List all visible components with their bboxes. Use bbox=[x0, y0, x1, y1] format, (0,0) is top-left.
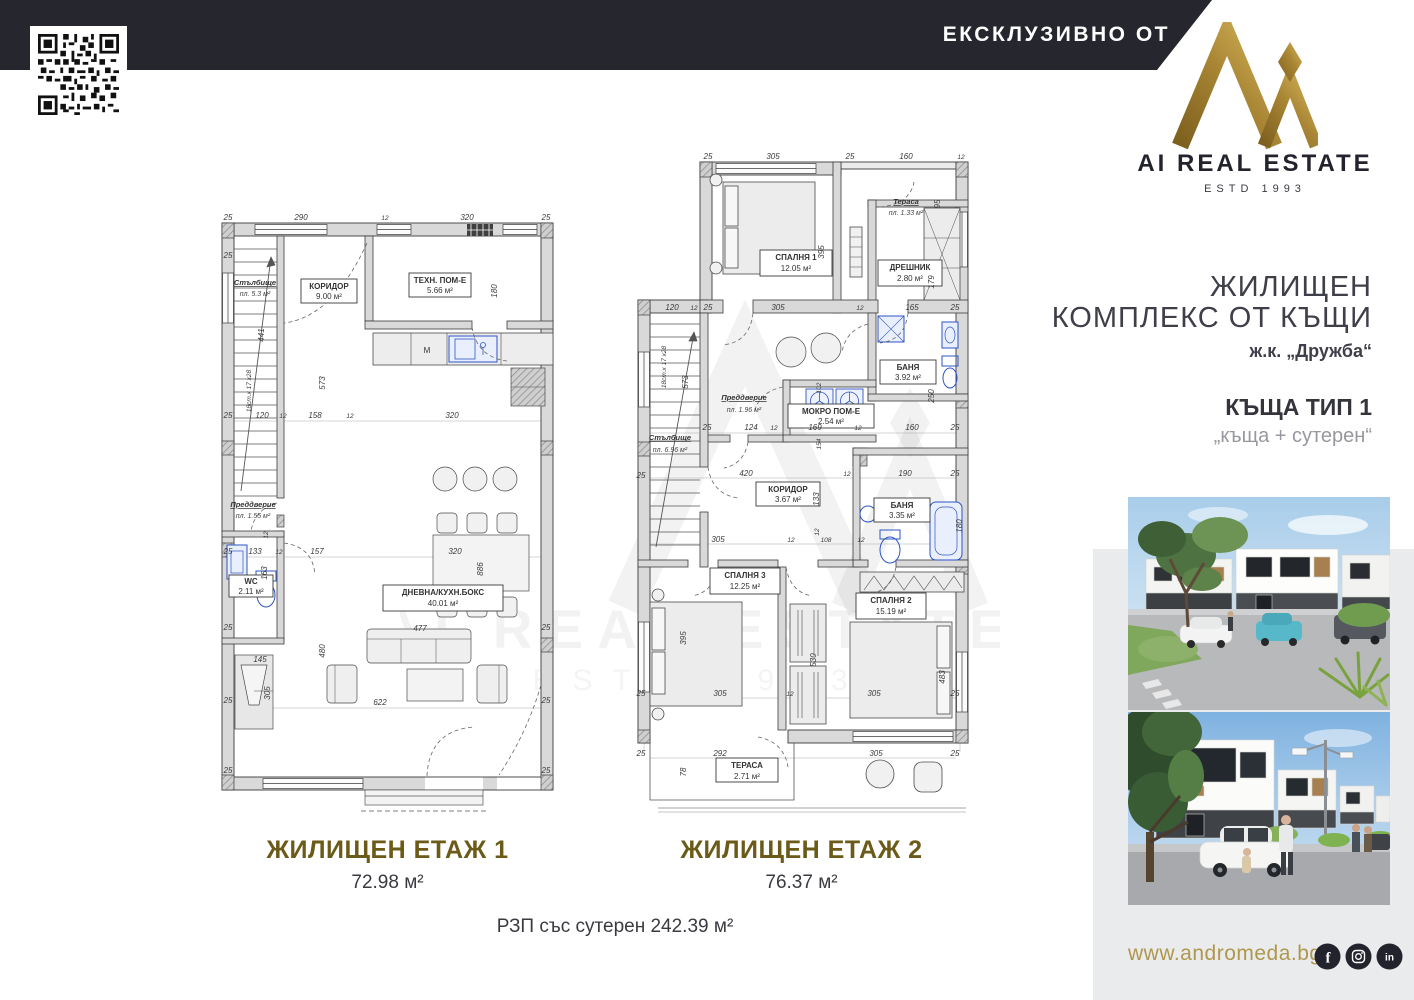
dimension-label: 120 bbox=[255, 411, 269, 420]
dimension-label: 157 bbox=[310, 547, 324, 556]
svg-text:Стълбище: Стълбище bbox=[649, 433, 691, 442]
svg-text:пл. 1.55 м²: пл. 1.55 м² bbox=[236, 513, 271, 520]
dimension-label: 25 bbox=[950, 469, 960, 478]
dimension-label: 25 bbox=[702, 423, 712, 432]
dimension-label: 250 bbox=[927, 389, 936, 404]
svg-text:15.19 м²: 15.19 м² bbox=[876, 607, 907, 616]
qr-code bbox=[30, 26, 127, 122]
facebook-icon[interactable]: f bbox=[1314, 943, 1341, 970]
dimension-label: 395 bbox=[679, 631, 688, 645]
total-area: РЗП със сутерен 242.39 м² bbox=[340, 916, 890, 938]
floor1-area: 72.98 м² bbox=[215, 872, 560, 894]
house-type: КЪЩА ТИП 1 bbox=[972, 394, 1372, 421]
dimension-label: 12 bbox=[279, 413, 287, 420]
dimension-label: 573 bbox=[681, 375, 690, 389]
svg-text:БАНЯ: БАНЯ bbox=[897, 363, 920, 372]
svg-text:ТЕХН. ПОМ-Е: ТЕХН. ПОМ-Е bbox=[414, 276, 467, 285]
floor2-title-block: ЖИЛИЩЕН ЕТАЖ 2 76.37 м² bbox=[628, 836, 975, 894]
house-subtype: „къща + сутерен“ bbox=[972, 425, 1372, 448]
dimension-label: 102 bbox=[816, 382, 823, 393]
dimension-label: 133 bbox=[248, 547, 262, 556]
svg-text:СПАЛНЯ 3: СПАЛНЯ 3 bbox=[724, 571, 766, 580]
dimension-label: 25 bbox=[950, 423, 960, 432]
dimension-label: 25 bbox=[950, 303, 960, 312]
svg-text:3.92 м²: 3.92 м² bbox=[895, 373, 921, 382]
svg-text:2.11 м²: 2.11 м² bbox=[238, 587, 264, 596]
dimension-label: 154 bbox=[816, 438, 823, 449]
dimension-label: 25 bbox=[703, 152, 713, 161]
dimension-label: 108 bbox=[821, 537, 832, 544]
instagram-icon[interactable] bbox=[1345, 943, 1372, 970]
dimension-label: 12 bbox=[770, 425, 778, 432]
dimension-label: 145 bbox=[253, 655, 267, 664]
dimension-label: 305 bbox=[869, 749, 883, 758]
dimension-label: 305 bbox=[771, 303, 785, 312]
svg-text:5.66 м²: 5.66 м² bbox=[427, 286, 453, 295]
dimension-label: 320 bbox=[445, 411, 459, 420]
svg-text:СПАЛНЯ 1: СПАЛНЯ 1 bbox=[775, 253, 817, 262]
dimension-label: 320 bbox=[460, 213, 474, 222]
dimension-label: 25 bbox=[223, 411, 233, 420]
brand-mark-icon bbox=[1168, 22, 1318, 150]
dimension-label: 165 bbox=[905, 303, 919, 312]
dimension-label: 25 bbox=[950, 749, 960, 758]
dimension-label: 12 bbox=[381, 215, 389, 222]
dimension-label: 163 bbox=[260, 566, 269, 580]
svg-text:МОКРО ПОМ-Е: МОКРО ПОМ-Е bbox=[802, 407, 861, 416]
dimension-label: 320 bbox=[448, 547, 462, 556]
dimension-label: 420 bbox=[739, 469, 753, 478]
dimension-label: 305 bbox=[713, 689, 727, 698]
svg-text:9.00 м²: 9.00 м² bbox=[316, 292, 342, 301]
dimension-label: 886 bbox=[476, 562, 485, 576]
dimension-label: 622 bbox=[373, 698, 387, 707]
dimension-label: 12 bbox=[786, 691, 794, 698]
svg-text:пл. 1.33 м²: пл. 1.33 м² bbox=[889, 210, 924, 217]
svg-text:пл. 5.3 м²: пл. 5.3 м² bbox=[240, 291, 271, 298]
dimension-label: 12 bbox=[690, 305, 698, 312]
dimension-label: 483 bbox=[938, 670, 947, 684]
dimension-label: 477 bbox=[413, 624, 427, 633]
website-link[interactable]: www.andromeda.bg bbox=[1128, 942, 1322, 966]
svg-text:ДРЕШНИК: ДРЕШНИК bbox=[890, 263, 931, 272]
dimension-label: 18ст.х 17 х28 bbox=[246, 370, 253, 413]
dimension-label: 25 bbox=[223, 696, 233, 705]
dimension-label: 25 bbox=[541, 766, 551, 775]
render-photo-1 bbox=[1128, 497, 1390, 710]
dimension-label: 395 bbox=[817, 245, 826, 259]
dimension-label: 305 bbox=[766, 152, 780, 161]
dimension-label: 160 bbox=[899, 152, 913, 161]
project-location: ж.к. „Дружба“ bbox=[972, 341, 1372, 362]
render-photo-2 bbox=[1128, 712, 1390, 905]
dimension-label: 25 bbox=[541, 696, 551, 705]
dimension-label: 179 bbox=[927, 275, 936, 289]
dimension-label: 95 bbox=[933, 199, 942, 208]
bedroom3-furniture bbox=[650, 589, 826, 724]
dimension-label: 180 bbox=[955, 519, 964, 533]
svg-text:Тераса: Тераса bbox=[893, 197, 919, 206]
svg-text:12.25 м²: 12.25 м² bbox=[730, 582, 761, 591]
svg-text:КОРИДОР: КОРИДОР bbox=[309, 282, 349, 291]
dimension-label: 25 bbox=[223, 547, 233, 556]
svg-text:пл. 6.96 м²: пл. 6.96 м² bbox=[653, 447, 688, 454]
dimension-label: 530 bbox=[809, 653, 818, 667]
dimension-label: 78 bbox=[679, 767, 688, 776]
dimension-label: 169 bbox=[808, 423, 822, 432]
dimension-label: 12 bbox=[787, 537, 795, 544]
floor2-title: ЖИЛИЩЕН ЕТАЖ 2 bbox=[628, 836, 975, 865]
svg-text:Стълбище: Стълбище bbox=[234, 278, 276, 287]
svg-text:2.54 м²: 2.54 м² bbox=[818, 417, 844, 426]
dimension-label: 25 bbox=[845, 152, 855, 161]
dimension-label: 12 bbox=[814, 528, 821, 536]
dimension-label: 12 bbox=[854, 425, 862, 432]
dimension-label: 25 bbox=[223, 213, 233, 222]
dimension-label: 480 bbox=[318, 644, 327, 658]
svg-text:WC: WC bbox=[244, 577, 258, 586]
dimension-label: 120 bbox=[665, 303, 679, 312]
dimension-label: 12 bbox=[957, 154, 965, 161]
svg-text:КОРИДОР: КОРИДОР bbox=[768, 485, 808, 494]
kitchen-counter bbox=[373, 333, 553, 406]
dimension-label: 190 bbox=[898, 469, 912, 478]
dimension-label: 25 bbox=[950, 689, 960, 698]
svg-text:пл. 1.96 м²: пл. 1.96 м² bbox=[727, 407, 762, 414]
linkedin-icon[interactable]: in bbox=[1376, 943, 1403, 970]
social-links: f in bbox=[1314, 943, 1403, 970]
dimension-label: 305 bbox=[867, 689, 881, 698]
dimension-label: 12 bbox=[857, 537, 865, 544]
dimension-label: 12 bbox=[263, 531, 270, 539]
project-title-line2: КОМПЛЕКС ОТ КЪЩИ bbox=[972, 303, 1372, 334]
svg-text:in: in bbox=[1385, 953, 1394, 964]
dimension-label: 18ст.х 17 х28 bbox=[661, 346, 668, 389]
dimension-label: 290 bbox=[293, 213, 308, 222]
dimension-label: 25 bbox=[223, 623, 233, 632]
svg-text:Преддверие: Преддверие bbox=[230, 500, 275, 509]
dimension-label: 25 bbox=[223, 251, 233, 260]
dimension-label: 180 bbox=[490, 284, 499, 298]
svg-text:40.01 м²: 40.01 м² bbox=[428, 599, 459, 608]
dimension-label: 12 bbox=[275, 549, 283, 556]
dimension-label: 305 bbox=[711, 535, 725, 544]
dimension-label: 12 bbox=[856, 305, 864, 312]
dimension-label: 25 bbox=[636, 689, 646, 698]
dimension-label: 441 bbox=[257, 328, 266, 341]
floor1-title-block: ЖИЛИЩЕН ЕТАЖ 1 72.98 м² bbox=[215, 836, 560, 894]
svg-text:3.67 м²: 3.67 м² bbox=[775, 495, 801, 504]
dimension-label: 573 bbox=[318, 376, 327, 390]
project-title-line1: ЖИЛИЩЕН bbox=[972, 272, 1372, 303]
dimension-label: 25 bbox=[541, 623, 551, 632]
dimension-label: 305 bbox=[263, 686, 272, 700]
dimension-label: 292 bbox=[712, 749, 727, 758]
dimension-label: 25 bbox=[223, 766, 233, 775]
dimension-label: 25 bbox=[703, 303, 713, 312]
dimension-label: 25 bbox=[636, 471, 646, 480]
qr-code-icon bbox=[38, 34, 119, 115]
floor1-title: ЖИЛИЩЕН ЕТАЖ 1 bbox=[215, 836, 560, 865]
svg-text:ДНЕВНА/КУХН.БОКС: ДНЕВНА/КУХН.БОКС bbox=[402, 588, 485, 597]
svg-text:3.35 м²: 3.35 м² bbox=[889, 511, 915, 520]
svg-text:2.71 м²: 2.71 м² bbox=[734, 772, 760, 781]
svg-text:ТЕРАСА: ТЕРАСА bbox=[731, 761, 763, 770]
dimension-label: 133 bbox=[812, 492, 821, 506]
dimension-label: 25 bbox=[636, 749, 646, 758]
svg-text:Преддверие: Преддверие bbox=[721, 393, 766, 402]
dimension-label: 12 bbox=[843, 471, 851, 478]
svg-text:СПАЛНЯ 2: СПАЛНЯ 2 bbox=[870, 596, 912, 605]
brand-estd: ESTD 1993 bbox=[1130, 183, 1380, 195]
floor2-area: 76.37 м² bbox=[628, 872, 975, 894]
dimension-label: 25 bbox=[541, 213, 551, 222]
floor2-plan: СПАЛНЯ 1 12.05 м² Тераса пл. 1.33 м² ДРЕ… bbox=[628, 152, 975, 822]
brand-name: AI REAL ESTATE bbox=[1130, 150, 1380, 178]
project-info: ЖИЛИЩЕН КОМПЛЕКС ОТ КЪЩИ ж.к. „Дружба“ К… bbox=[972, 272, 1372, 448]
svg-text:2.80 м²: 2.80 м² bbox=[897, 274, 923, 283]
dimension-label: 158 bbox=[308, 411, 322, 420]
dimension-label: 124 bbox=[744, 423, 758, 432]
svg-text:БАНЯ: БАНЯ bbox=[891, 501, 914, 510]
svg-text:12.05 м²: 12.05 м² bbox=[781, 264, 812, 273]
dimension-label: 12 bbox=[346, 413, 354, 420]
brochure-page: ЕКСКЛУЗИВНО ОТ bbox=[0, 0, 1414, 1000]
kitchen-sink bbox=[449, 336, 497, 362]
svg-text:М: М bbox=[424, 346, 431, 355]
floor1-plan: Стълбище пл. 5.3 м² КОРИДОР 9.00 м² ТЕХН… bbox=[215, 213, 560, 830]
exclusive-label: ЕКСКЛУЗИВНО ОТ bbox=[943, 23, 1170, 47]
dimension-label: 160 bbox=[905, 423, 919, 432]
